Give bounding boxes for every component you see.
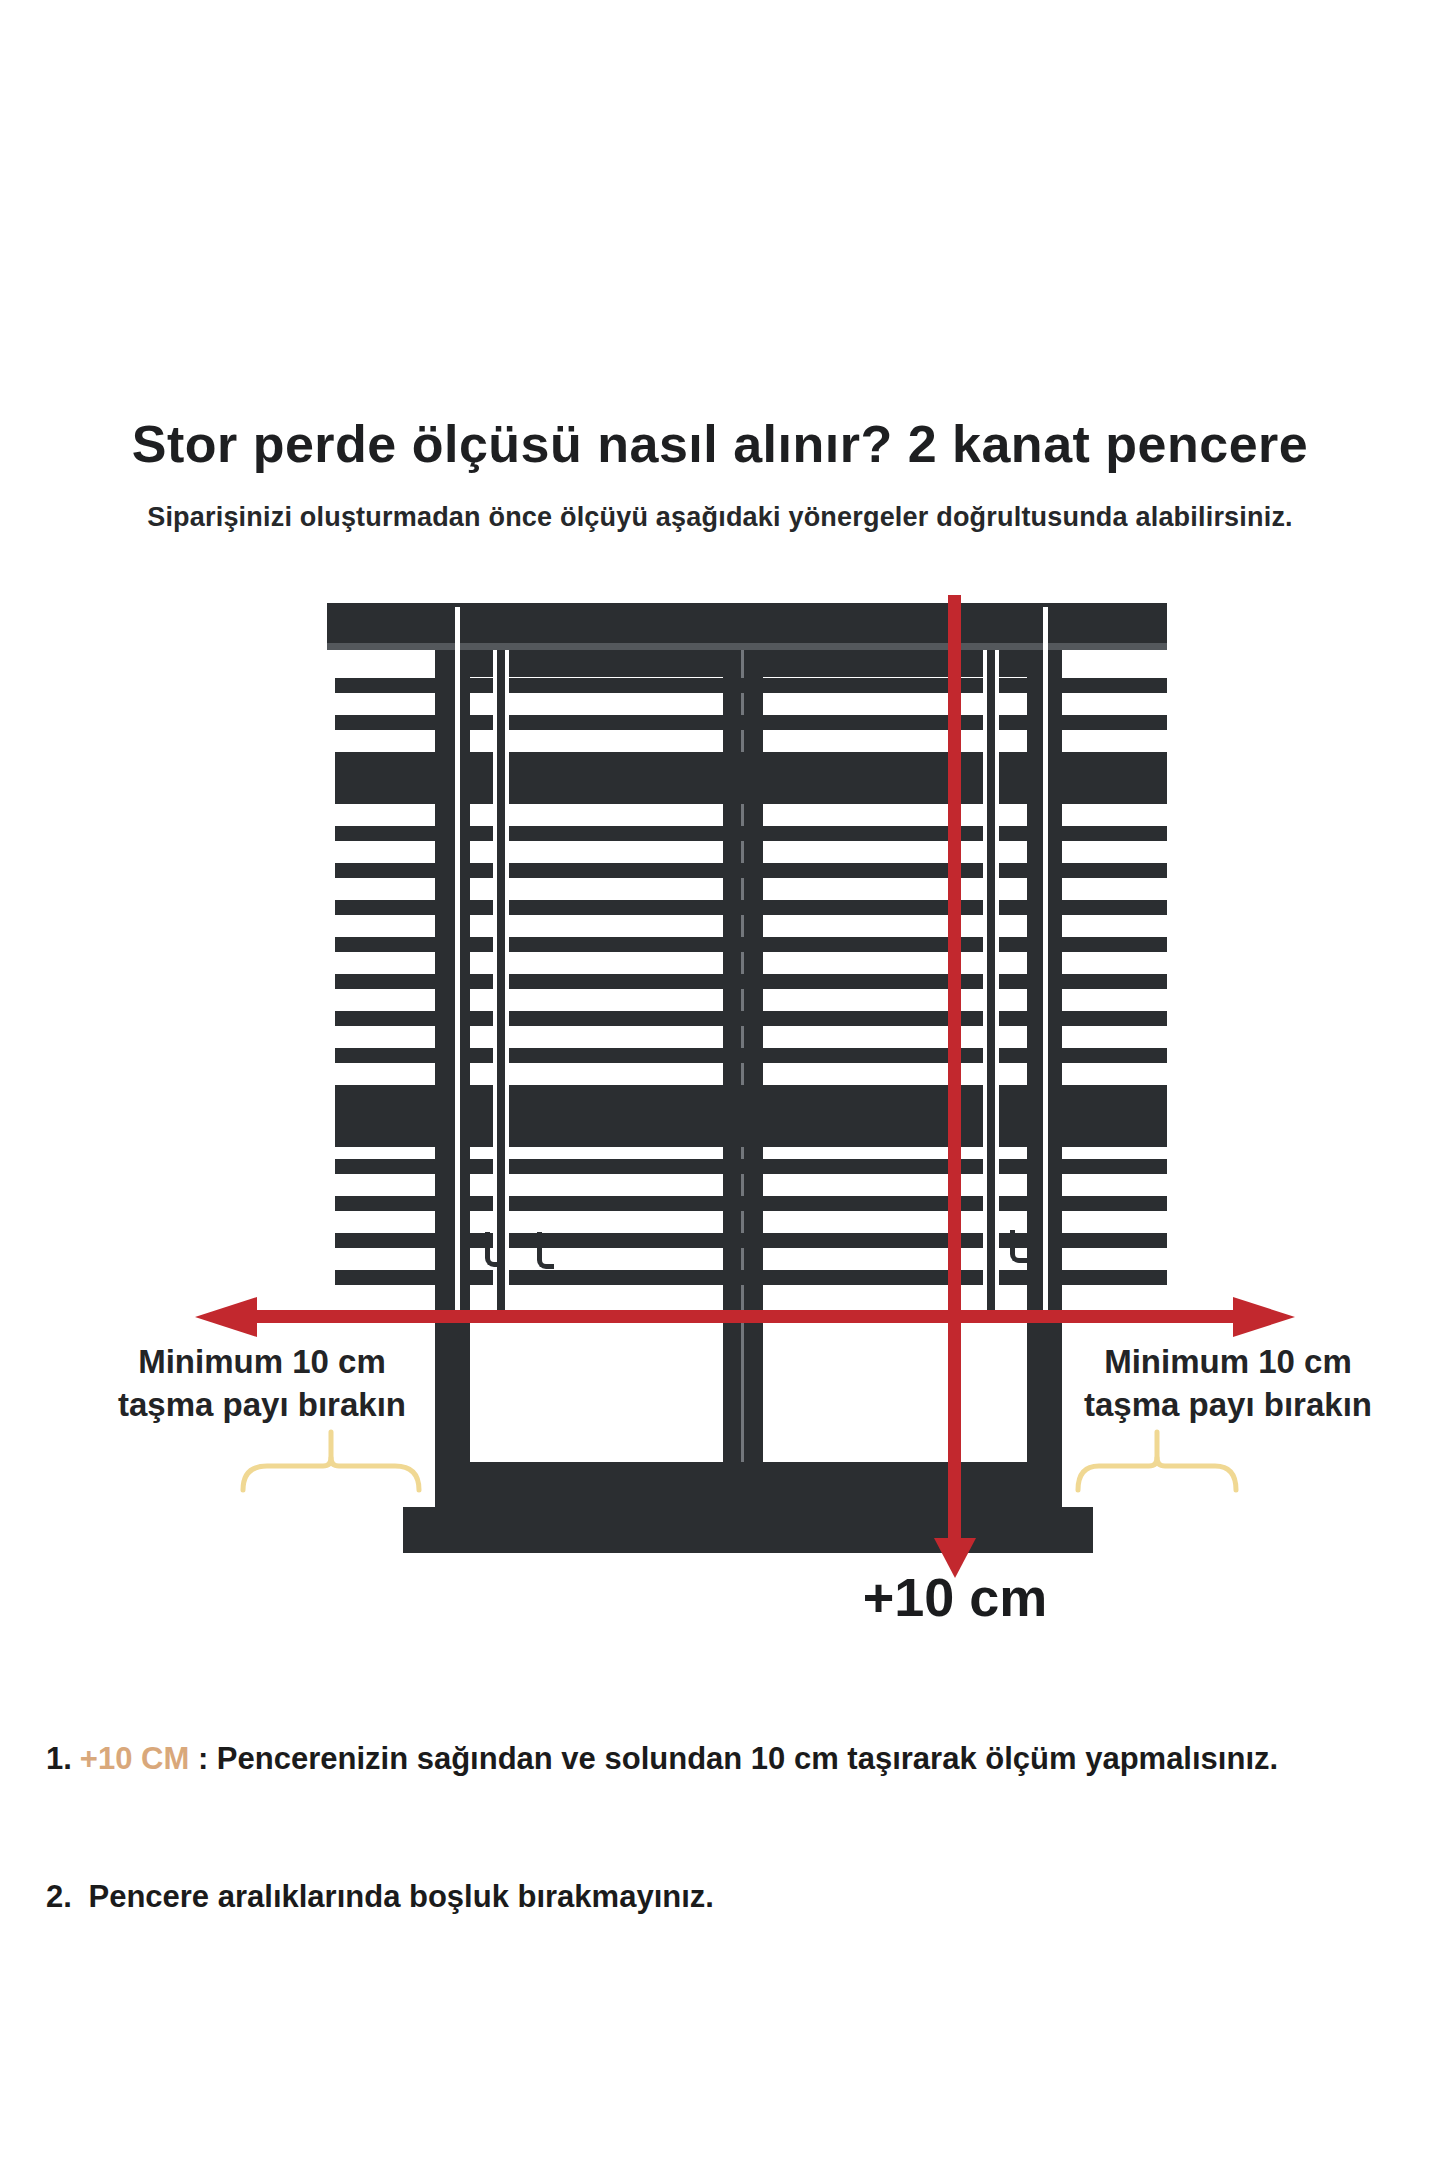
window-bottom-frame (435, 1462, 1062, 1507)
instruction-item-1: 1.+10 CM : Pencerenizin sağından ve solu… (46, 1736, 1426, 1782)
blind-cord-hook (537, 1232, 554, 1269)
page-subtitle: Siparişinizi oluşturmadan önce ölçüyü aş… (0, 502, 1440, 533)
overhang-brace-left (240, 1428, 422, 1494)
overhang-label-left-line1: Minimum 10 cm (72, 1340, 452, 1383)
overhang-label-right: Minimum 10 cm taşma payı bırakın (1038, 1340, 1418, 1426)
infographic-page: Stor perde ölçüsü nasıl alınır? 2 kanat … (0, 0, 1440, 2160)
plus-10cm-label: +10 cm (810, 1566, 1100, 1628)
instruction-1-text: : Pencerenizin sağından ve solundan 10 c… (189, 1741, 1278, 1776)
overhang-label-left-line2: taşma payı bırakın (72, 1383, 452, 1426)
arrow-right-icon (1233, 1297, 1295, 1337)
blind-cord-slit (1043, 607, 1048, 1310)
arrow-left-icon (195, 1297, 257, 1337)
instructions-list: 1.+10 CM : Pencerenizin sağından ve solu… (46, 1644, 1426, 2012)
window-sill (403, 1507, 1093, 1553)
overhang-brace-right (1075, 1428, 1239, 1494)
overhang-label-right-line2: taşma payı bırakın (1038, 1383, 1418, 1426)
instruction-item-2: 2. Pencere aralıklarında boşluk bırakmay… (46, 1874, 1426, 1920)
instruction-1-highlight: +10 CM (80, 1741, 189, 1776)
blind-lift-cord (983, 650, 999, 1310)
blind-headrail (327, 603, 1167, 650)
overhang-label-left: Minimum 10 cm taşma payı bırakın (72, 1340, 452, 1426)
page-title: Stor perde ölçüsü nasıl alınır? 2 kanat … (0, 414, 1440, 474)
blind-cord-hook (1010, 1230, 1027, 1263)
horizontal-arrow-shaft (252, 1310, 1242, 1323)
instruction-2-number: 2. (46, 1879, 72, 1914)
overhang-label-right-line1: Minimum 10 cm (1038, 1340, 1418, 1383)
vertical-arrow-shaft (948, 595, 961, 1540)
instruction-1-number: 1. (46, 1741, 72, 1776)
blind-lift-cord (493, 650, 509, 1310)
instruction-2-text: Pencere aralıklarında boşluk bırakmayını… (80, 1879, 714, 1914)
blind-cord-slit (455, 607, 460, 1310)
blind-cord-hook (485, 1232, 502, 1267)
